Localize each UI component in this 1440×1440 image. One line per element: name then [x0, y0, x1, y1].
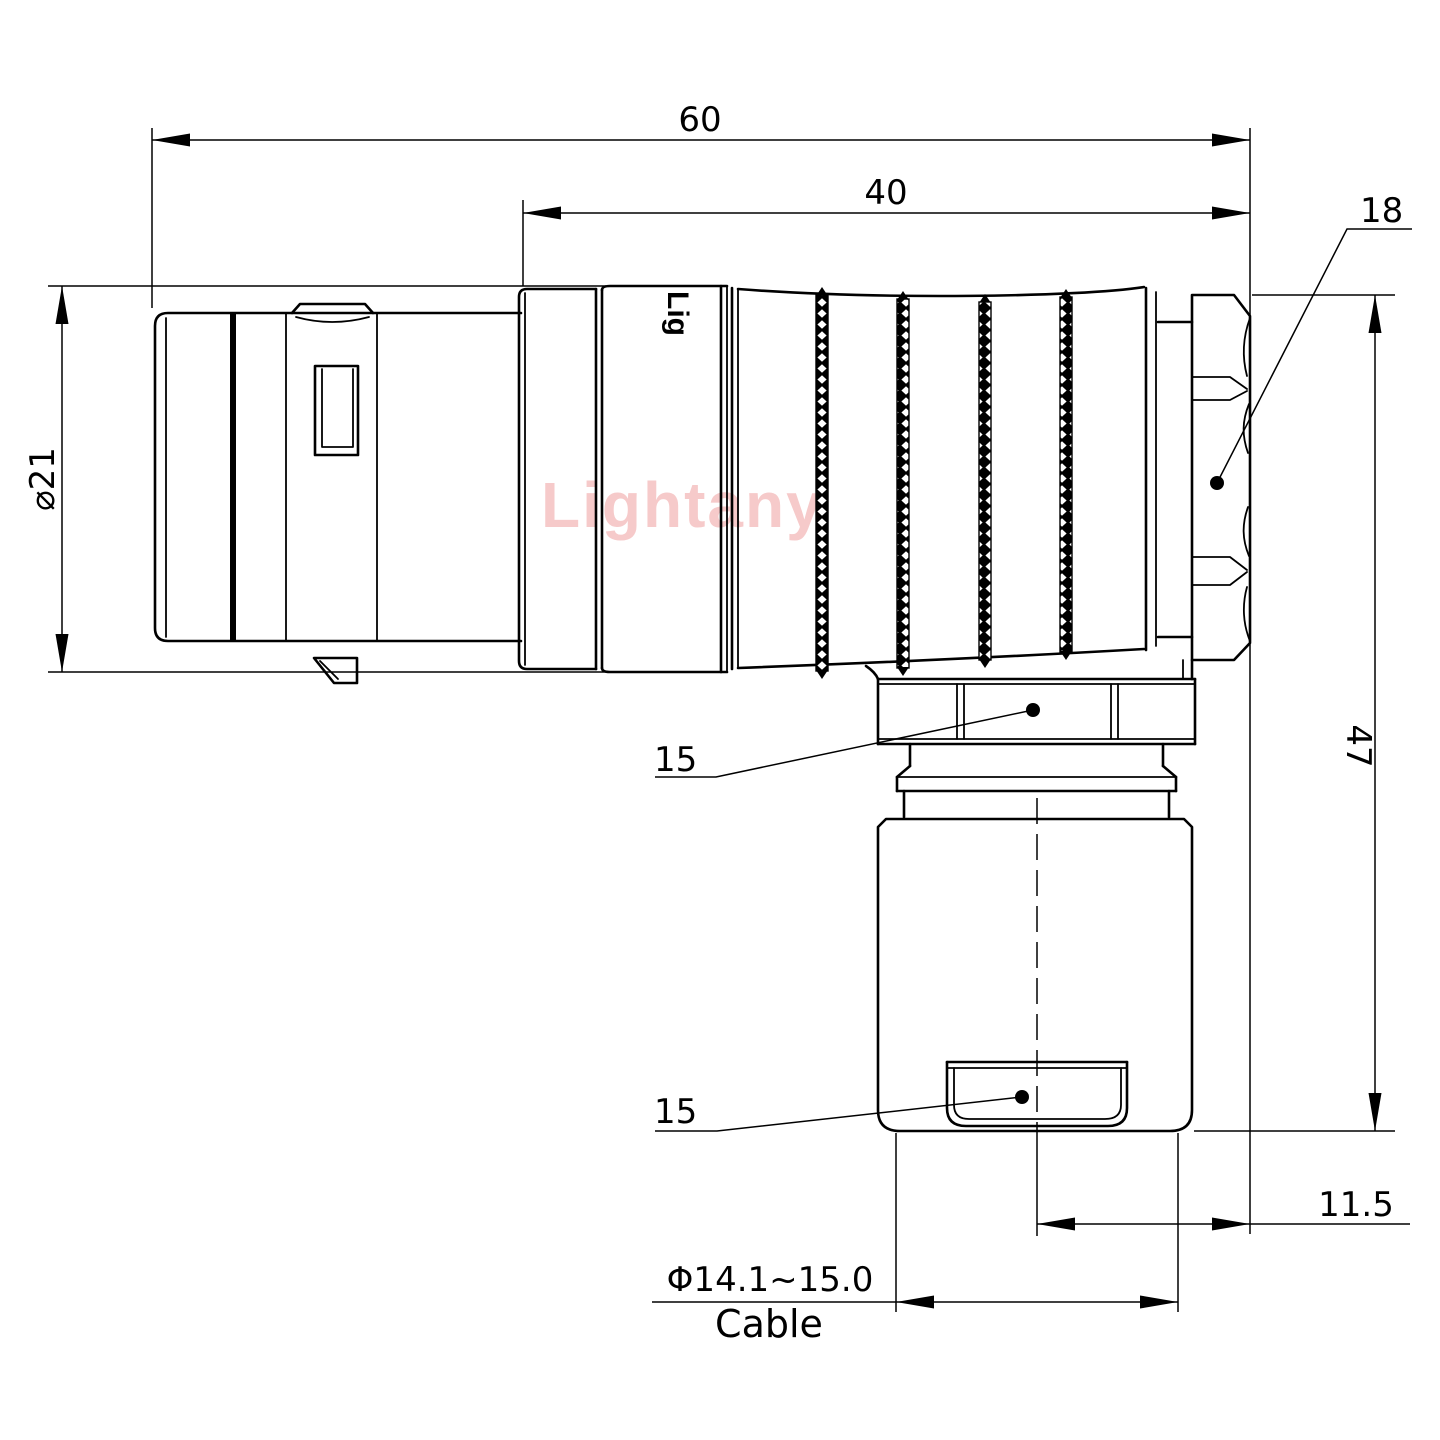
engineering-drawing-page: Lightany Lig	[0, 0, 1440, 1440]
dim-label-cable: Cable	[715, 1302, 823, 1346]
dim-cable-diameter: Φ14.1~15.0 Cable	[652, 1133, 1178, 1346]
dim-label-47: 47	[1338, 724, 1378, 767]
leader-label-18: 18	[1360, 191, 1403, 231]
leader-coupling-nut-15: 15	[654, 703, 1040, 780]
rear-collar	[1158, 322, 1192, 637]
knurl-band-4	[1060, 289, 1072, 660]
dim-overall-length-60: 60	[152, 100, 1250, 1234]
dim-label-dia21: ⌀21	[23, 447, 63, 511]
leader-label-15-gland: 15	[654, 1092, 697, 1132]
knurl-band-3	[979, 294, 991, 668]
leader-backnut-18: 18	[1210, 191, 1412, 490]
cable-bushing	[878, 819, 1192, 1131]
front-release-sleeve	[155, 304, 521, 683]
connector-technical-drawing: Lightany Lig	[0, 0, 1440, 1440]
knurl-band-2	[897, 291, 909, 676]
dim-label-60: 60	[678, 100, 721, 140]
dim-label-cable-range: Φ14.1~15.0	[667, 1260, 874, 1300]
dim-height-47: 47	[1194, 295, 1395, 1131]
dim-label-40: 40	[864, 173, 907, 213]
body-logo-text: Lig	[661, 291, 694, 336]
watermark-text: Lightany	[541, 469, 824, 541]
front-sleeve-groove	[230, 314, 236, 641]
connector-side-view: Lig	[155, 286, 1250, 1236]
top-key	[292, 304, 373, 313]
knurl-band-1	[816, 287, 828, 679]
leader-label-15-coupling: 15	[654, 740, 697, 780]
dim-rear-length-40: 40	[523, 173, 1250, 286]
dim-label-11-5: 11.5	[1318, 1185, 1394, 1225]
dim-offset-11-5: 11.5	[1037, 1185, 1410, 1231]
elbow-housing	[866, 660, 1192, 679]
